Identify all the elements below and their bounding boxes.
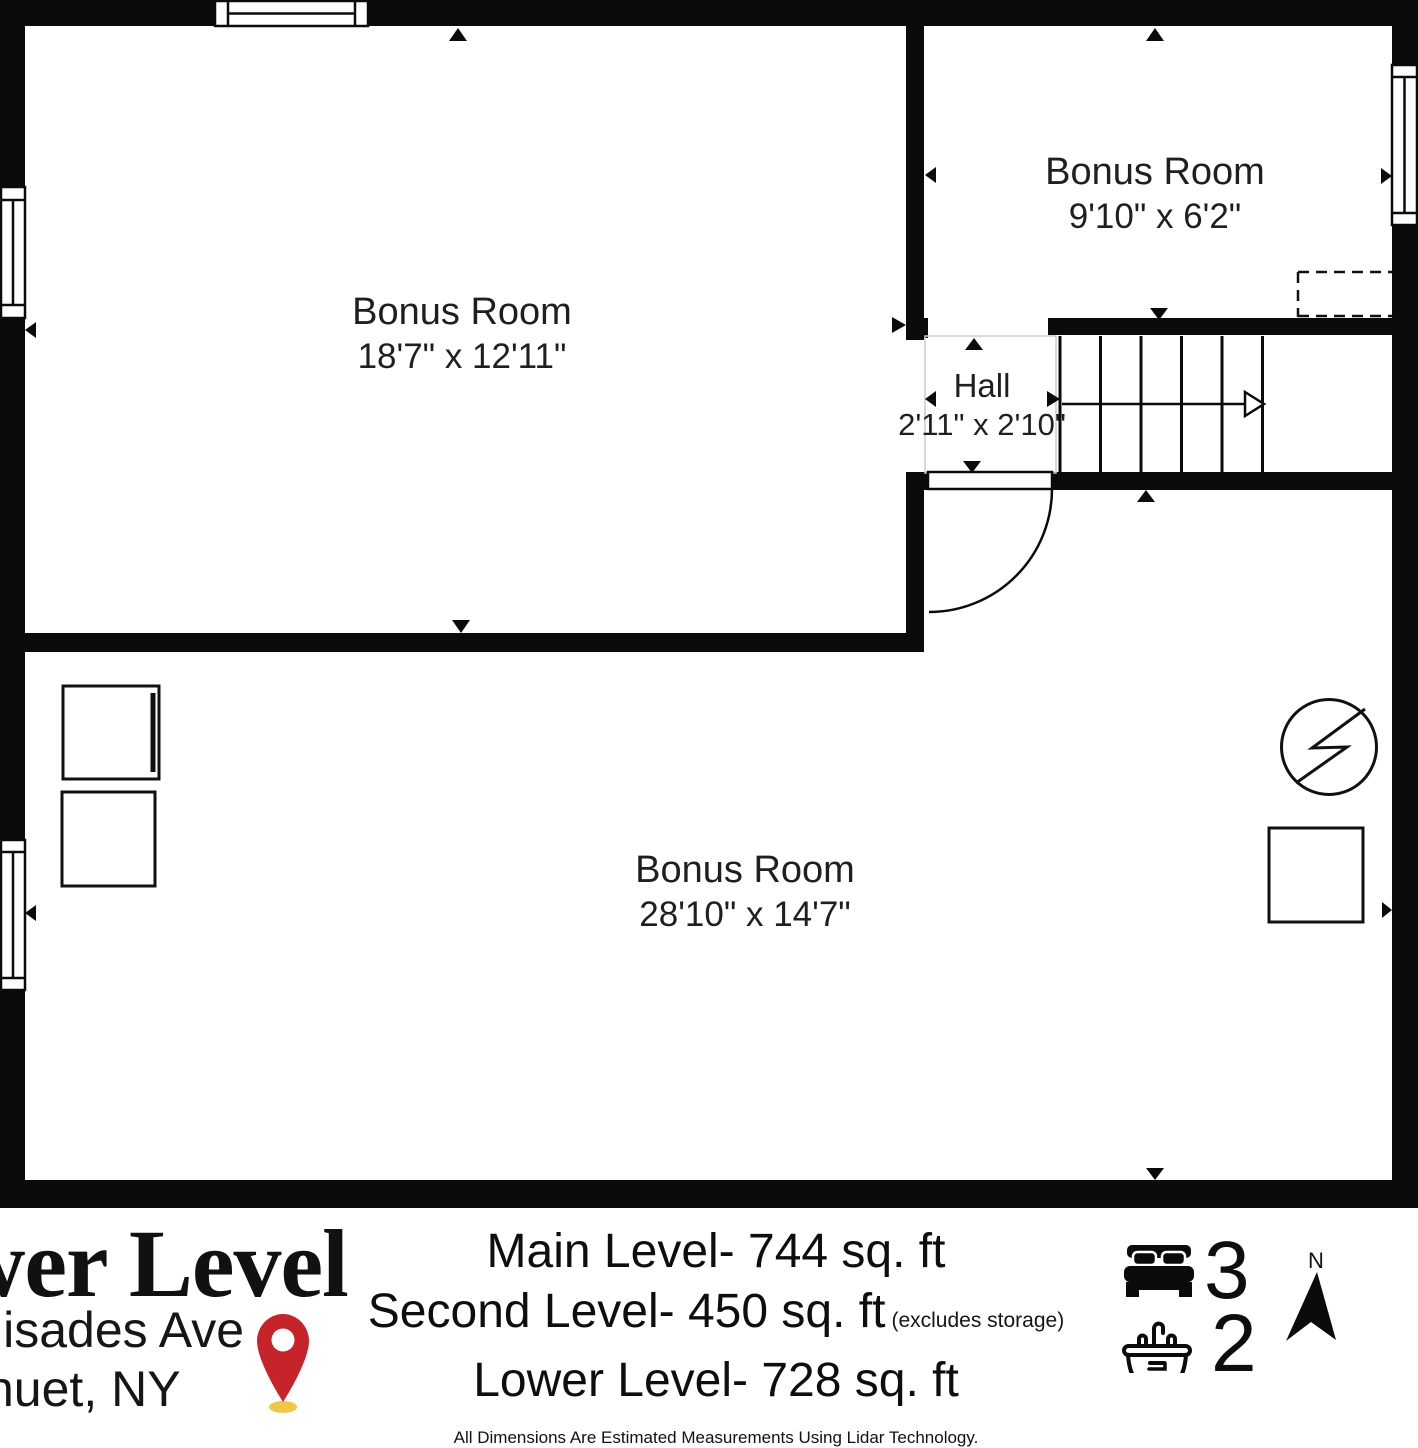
wall-interior-vertical-mid (906, 472, 924, 652)
marker-right (892, 317, 906, 333)
marker-down (1146, 1168, 1164, 1180)
marker-right (1382, 902, 1392, 918)
address-line-1: lisades Ave (0, 1301, 244, 1359)
area-summary: Main Level- 744 sq. ft Second Level- 450… (358, 1222, 1074, 1448)
wall-bottom (0, 1180, 1418, 1208)
wall-stairs-bottom (1050, 472, 1418, 490)
storage-dashed-outline (1298, 272, 1394, 317)
window-left-lower (1, 840, 25, 990)
marker-up (1137, 490, 1155, 502)
bathroom-sink-icon (1121, 1305, 1193, 1373)
wall-left (0, 0, 25, 1208)
bed-icon (1124, 1245, 1194, 1302)
marker-left (925, 167, 936, 183)
appliance-box-1 (63, 686, 159, 779)
room-name: Bonus Room (352, 290, 572, 336)
area-text: Second Level- 450 sq. ft (368, 1285, 886, 1338)
door (928, 472, 1052, 612)
door-swing-arc (929, 489, 1052, 612)
door-leaf (928, 472, 1052, 489)
area-text: Main Level- 744 sq. ft (487, 1225, 946, 1278)
room-label-hall: Hall 2'11" x 2'10" (898, 366, 1066, 443)
marker-up (965, 338, 983, 350)
area-line-main: Main Level- 744 sq. ft (358, 1222, 1074, 1282)
marker-left (25, 322, 36, 338)
room-dimensions: 18'7" x 12'11" (352, 336, 572, 378)
room-dimensions: 2'11" x 2'10" (898, 406, 1066, 443)
area-note: (excludes storage) (891, 1309, 1064, 1332)
stair-direction-arrow (1062, 392, 1264, 416)
room-label-bonus-1: Bonus Room 18'7" x 12'11" (352, 290, 572, 378)
bathroom-count: 2 (1211, 1303, 1257, 1385)
wall-stairs-top (1048, 318, 1395, 335)
appliance-box-2 (62, 792, 155, 886)
room-name: Bonus Room (1045, 150, 1265, 196)
room-label-bonus-3: Bonus Room 28'10" x 14'7" (635, 848, 855, 936)
marker-left (25, 905, 36, 921)
room-dimensions: 28'10" x 14'7" (635, 894, 855, 936)
disclaimer-text: All Dimensions Are Estimated Measurement… (358, 1428, 1074, 1448)
map-pin-icon (255, 1312, 311, 1414)
floor-plan-page: { "colors": { "wall": "#0b0b0b", "text":… (0, 0, 1418, 1441)
marker-right (1381, 168, 1392, 184)
area-line-second: Second Level- 450 sq. ft(excludes storag… (358, 1282, 1074, 1351)
room-dimensions: 9'10" x 6'2" (1045, 196, 1265, 238)
area-text: Lower Level- 728 sq. ft (473, 1354, 959, 1407)
window-right (1392, 65, 1417, 225)
wall-top (0, 0, 1418, 26)
marker-up (1146, 28, 1164, 41)
window-left-upper (1, 187, 25, 318)
compass-north-icon (1280, 1268, 1342, 1346)
appliance-box-3 (1269, 828, 1363, 922)
wall-interior-vertical-top (906, 24, 924, 340)
marker-up (449, 28, 467, 41)
room-name: Hall (898, 366, 1066, 406)
area-line-lower: Lower Level- 728 sq. ft (358, 1351, 1074, 1411)
electrical-panel-icon (1282, 700, 1377, 795)
wall-room1-bottom (0, 633, 924, 652)
room-label-bonus-2: Bonus Room 9'10" x 6'2" (1045, 150, 1265, 238)
marker-down (452, 620, 470, 633)
room-name: Bonus Room (635, 848, 855, 894)
address-line-2: nuet, NY (0, 1360, 181, 1418)
window-top (215, 1, 368, 26)
wall-interior-nub (906, 318, 928, 338)
